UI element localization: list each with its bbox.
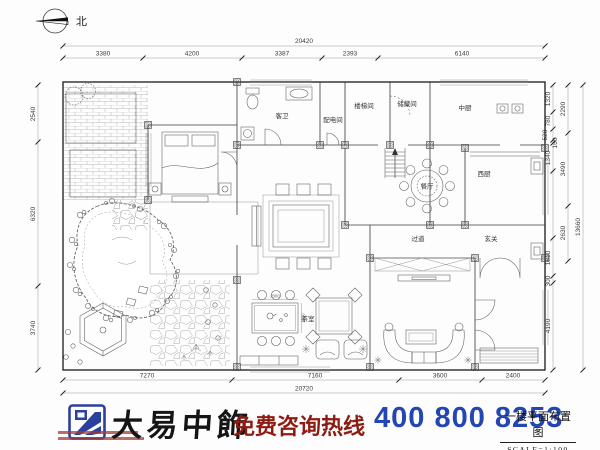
room-label-corridor: 过道 xyxy=(412,234,426,243)
dim-right-seg: 1340 xyxy=(545,150,552,165)
tea-set xyxy=(240,288,367,365)
floorplan-drawing: 北 20420 3380 4200 3387 2393 6140 7270 71… xyxy=(0,0,600,398)
tea-table-width-dim: 2000 xyxy=(270,294,280,299)
floor-lamp-icon xyxy=(302,345,367,353)
tea-table-depth-dim: 1000 xyxy=(301,313,306,323)
drawing-title: 一楼平面布置图 xyxy=(500,408,576,440)
dim-right-seg: 1320 xyxy=(545,91,552,106)
brand-logo xyxy=(68,404,106,440)
dim-bottom-seg: 3600 xyxy=(433,373,448,380)
footer-banner: 大易中飾 免费咨询热线 400 800 8253 一楼平面布置图 SCALE=1… xyxy=(0,398,600,450)
dim-left-seg: 6320 xyxy=(30,206,37,221)
north-label: 北 xyxy=(76,15,87,28)
dim-bottom-seg: 7160 xyxy=(308,373,323,380)
garden xyxy=(63,84,258,367)
paving-path xyxy=(150,280,230,366)
dim-right-seg: 160 xyxy=(552,137,559,148)
double-door-room xyxy=(475,300,495,350)
dim-left-seg: 3740 xyxy=(30,320,37,335)
kitchen-fixtures xyxy=(470,104,543,259)
dim-bottom-seg: 7270 xyxy=(140,373,155,380)
hotline-label: 免费咨询热线 xyxy=(233,409,365,441)
dim-right-seg: 2630 xyxy=(560,225,567,240)
dim-right: 1320 780 520 160 1340 1810 300 4190 2290… xyxy=(542,83,586,373)
living-room-set xyxy=(375,258,472,364)
room-label-storage: 储藏间 xyxy=(397,99,417,108)
stairs xyxy=(385,148,405,178)
title-rule xyxy=(500,442,576,443)
dim-top-seg: 6140 xyxy=(455,51,470,58)
dim-right-seg: 780 xyxy=(545,115,552,126)
bedroom-furniture xyxy=(149,132,231,202)
dim-bottom-total: 20720 xyxy=(295,386,313,393)
dim-right-seg: 300 xyxy=(545,275,552,286)
dim-left-seg: 2540 xyxy=(30,106,37,121)
dim-top: 20420 3380 4200 3387 2393 6140 xyxy=(61,38,548,61)
dim-right-seg: 4190 xyxy=(545,318,552,333)
double-door-foyer xyxy=(480,258,520,278)
floorplan-sheet: 北 20420 3380 4200 3387 2393 6140 7270 71… xyxy=(0,0,600,450)
dim-bottom-seg: 2400 xyxy=(506,373,521,380)
room-label-foyer: 玄关 xyxy=(485,234,499,243)
drawing-scale: SCALE=1:100 xyxy=(500,445,576,450)
dim-right-total: 13660 xyxy=(575,218,582,236)
dim-top-seg: 2393 xyxy=(343,51,358,58)
north-arrow-icon: 北 xyxy=(36,9,87,33)
room-label-power-room: 配电间 xyxy=(323,115,343,124)
room-label-stairwell: 楼梯间 xyxy=(354,101,374,110)
dim-top-seg: 3380 xyxy=(96,51,111,58)
center-table-set xyxy=(252,184,339,269)
door-arc xyxy=(221,152,237,168)
title-block: 一楼平面布置图 SCALE=1:100 xyxy=(500,408,576,450)
room-label-guest-bath: 客卫 xyxy=(276,111,290,120)
door-arc xyxy=(265,129,281,145)
dim-left: 2540 6320 3740 xyxy=(30,83,41,373)
paving-patch xyxy=(112,200,148,230)
dim-right-seg: 2290 xyxy=(560,101,567,116)
door-arc xyxy=(327,133,339,145)
dim-top-total: 20420 xyxy=(295,38,313,45)
room-label-dining: 餐厅 xyxy=(421,182,435,191)
room-label-western-kitchen: 西厨 xyxy=(478,170,492,178)
dim-top-seg: 3387 xyxy=(275,51,290,58)
dim-right-seg: 3490 xyxy=(560,161,567,176)
room-label-chinese-kitchen: 中厨 xyxy=(459,103,473,112)
dim-bottom: 7270 7160 3600 2400 20720 xyxy=(61,373,548,396)
dim-top-seg: 4200 xyxy=(185,51,200,58)
